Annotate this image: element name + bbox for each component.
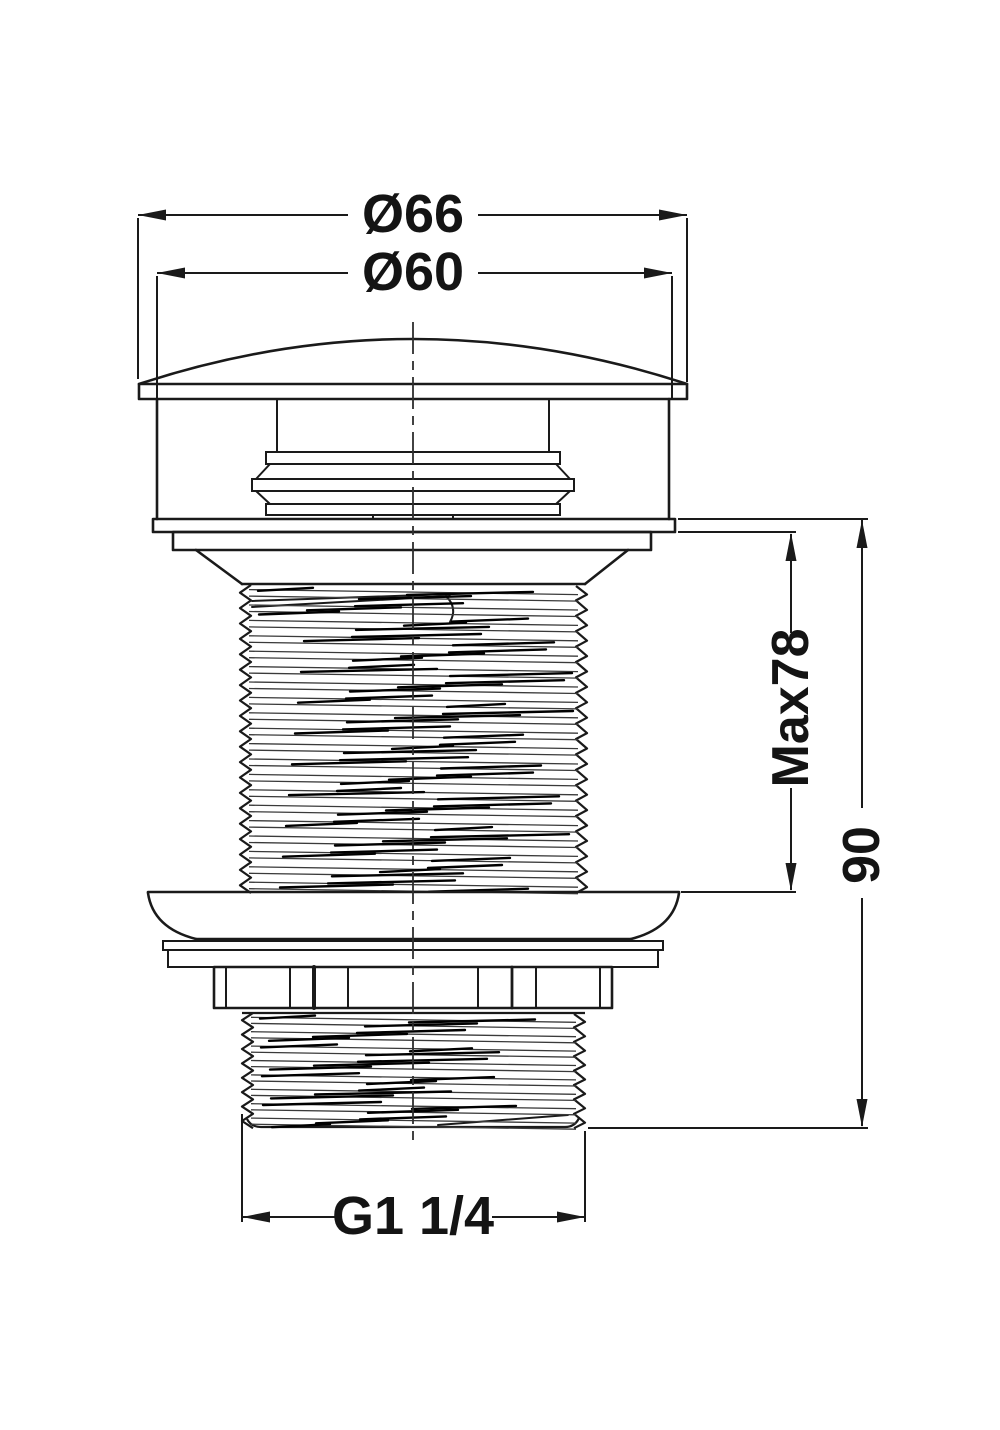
arrow-right-icon	[659, 210, 687, 221]
arrow-up-icon	[786, 533, 797, 561]
dim-label-max-depth: Max78	[762, 629, 820, 788]
arrow-up-icon	[857, 520, 868, 548]
arrow-left-icon	[138, 210, 166, 221]
dimension-max-depth: Max78	[678, 532, 820, 892]
arrow-right-icon	[644, 268, 672, 279]
arrow-left-icon	[242, 1212, 270, 1223]
technical-drawing-canvas: Ø66 Ø60 Max78 90 G1 1/4	[0, 0, 1000, 1430]
arrow-down-icon	[786, 863, 797, 891]
dim-label-thread-spec: G1 1/4	[332, 1186, 494, 1246]
arrow-left-icon	[157, 268, 185, 279]
dimension-overall-length: 90	[588, 519, 891, 1128]
arrow-down-icon	[857, 1099, 868, 1127]
dim-label-dia-inner: Ø60	[362, 242, 464, 302]
mounting-flange	[153, 519, 675, 622]
dimension-dia-inner: Ø60	[157, 242, 672, 398]
basin-waste-drawing: Ø66 Ø60 Max78 90 G1 1/4	[0, 0, 1000, 1430]
dim-label-overall-length: 90	[833, 826, 891, 884]
arrow-right-icon	[557, 1212, 585, 1223]
dim-label-dia-outer: Ø66	[362, 184, 464, 244]
